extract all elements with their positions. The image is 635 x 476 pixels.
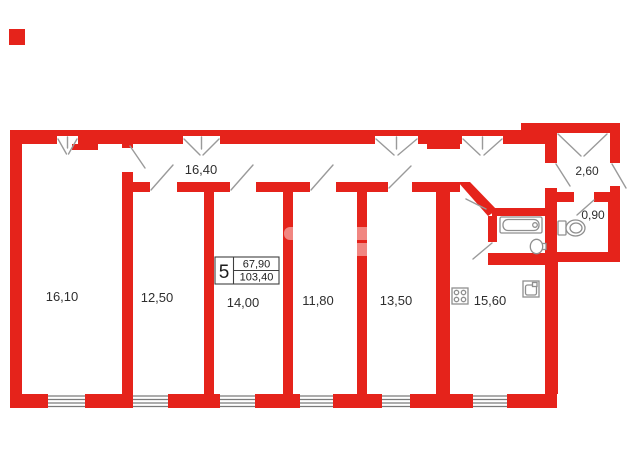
wall-kitchen-right — [545, 262, 558, 394]
vent-icon — [183, 136, 220, 155]
window-icon — [300, 394, 333, 408]
unit-upper-area: 67,90 — [243, 259, 271, 271]
room-area-label: 15,60 — [474, 293, 507, 308]
room-area-label: 14,00 — [227, 295, 260, 310]
room-area-label: 2,60 — [575, 164, 599, 178]
wall-left — [10, 130, 22, 408]
wall-bath-left — [488, 216, 497, 242]
wall-top-right — [545, 123, 620, 133]
wall-closet-bottom-right — [594, 192, 610, 202]
door-leaf-room1 — [130, 146, 145, 168]
door-leaf-room5 — [389, 166, 411, 188]
door-leaf-closet-left — [556, 164, 570, 186]
room-area-label: 13,50 — [380, 293, 413, 308]
door-leaf-closet-top-b — [584, 134, 607, 156]
unit-info-box: 5 67,90 103,40 — [215, 257, 279, 284]
bathtub-icon — [500, 217, 542, 233]
door-leaf-entrance — [612, 164, 626, 188]
wall-corridor-seg4 — [336, 182, 388, 192]
floor-plan: 16,10 12,50 14,00 11,80 13,50 15,60 16,4… — [0, 0, 635, 476]
vent-icon — [462, 136, 503, 155]
wall-partition-3 — [283, 192, 293, 394]
door-leaf-room2 — [151, 165, 173, 190]
room-area-label: 16,40 — [185, 162, 218, 177]
wall-top-corner-block — [521, 123, 545, 144]
vent-icon — [375, 136, 418, 155]
room-area-label: 0,90 — [581, 208, 605, 222]
unit-number: 5 — [219, 262, 230, 283]
floor-plan-drawing: 16,10 12,50 14,00 11,80 13,50 15,60 16,4… — [0, 0, 635, 476]
logo-mark — [9, 29, 25, 45]
room-area-label: 11,80 — [302, 293, 334, 308]
window-icon — [133, 394, 168, 408]
wash-basin-icon — [530, 239, 546, 253]
wall-corridor-seg2 — [177, 182, 230, 192]
window-icon — [48, 394, 85, 408]
door-leaf-room3 — [231, 165, 253, 190]
room-area-label: 12,50 — [141, 290, 174, 305]
wall-bath-block-upper — [545, 133, 557, 163]
wall-diagonal — [458, 182, 497, 216]
toilet-icon — [558, 220, 585, 236]
window-icon — [220, 394, 255, 408]
wall-right-upper — [610, 133, 620, 163]
wall-bath-block-lower — [545, 188, 557, 264]
wall-corridor-seg1 — [133, 182, 150, 192]
door-leaf-room4 — [311, 165, 333, 190]
walls — [10, 123, 620, 408]
wall-partition-4 — [357, 192, 367, 394]
wall-wc-right — [608, 192, 620, 262]
wall-tab-1 — [72, 144, 98, 150]
wall-closet-bottom-left — [557, 192, 574, 202]
door-leaf-closet-top-a — [558, 134, 581, 156]
room-area-label: 16,10 — [46, 289, 79, 304]
wall-bath-bottom — [488, 253, 545, 265]
wall-partition-5 — [436, 182, 450, 394]
stove-icon — [452, 288, 468, 304]
kitchen-sink-icon — [523, 281, 539, 297]
watermark-overlay — [284, 227, 410, 256]
window-icon — [382, 394, 410, 408]
wall-corridor-seg3 — [256, 182, 310, 192]
unit-lower-area: 103,40 — [240, 272, 274, 284]
wall-partition-1 — [122, 172, 133, 394]
wall-partition-2 — [204, 192, 214, 394]
window-icon — [473, 394, 507, 408]
wall-tab-2 — [427, 143, 460, 149]
wall-bath-top — [492, 208, 545, 216]
